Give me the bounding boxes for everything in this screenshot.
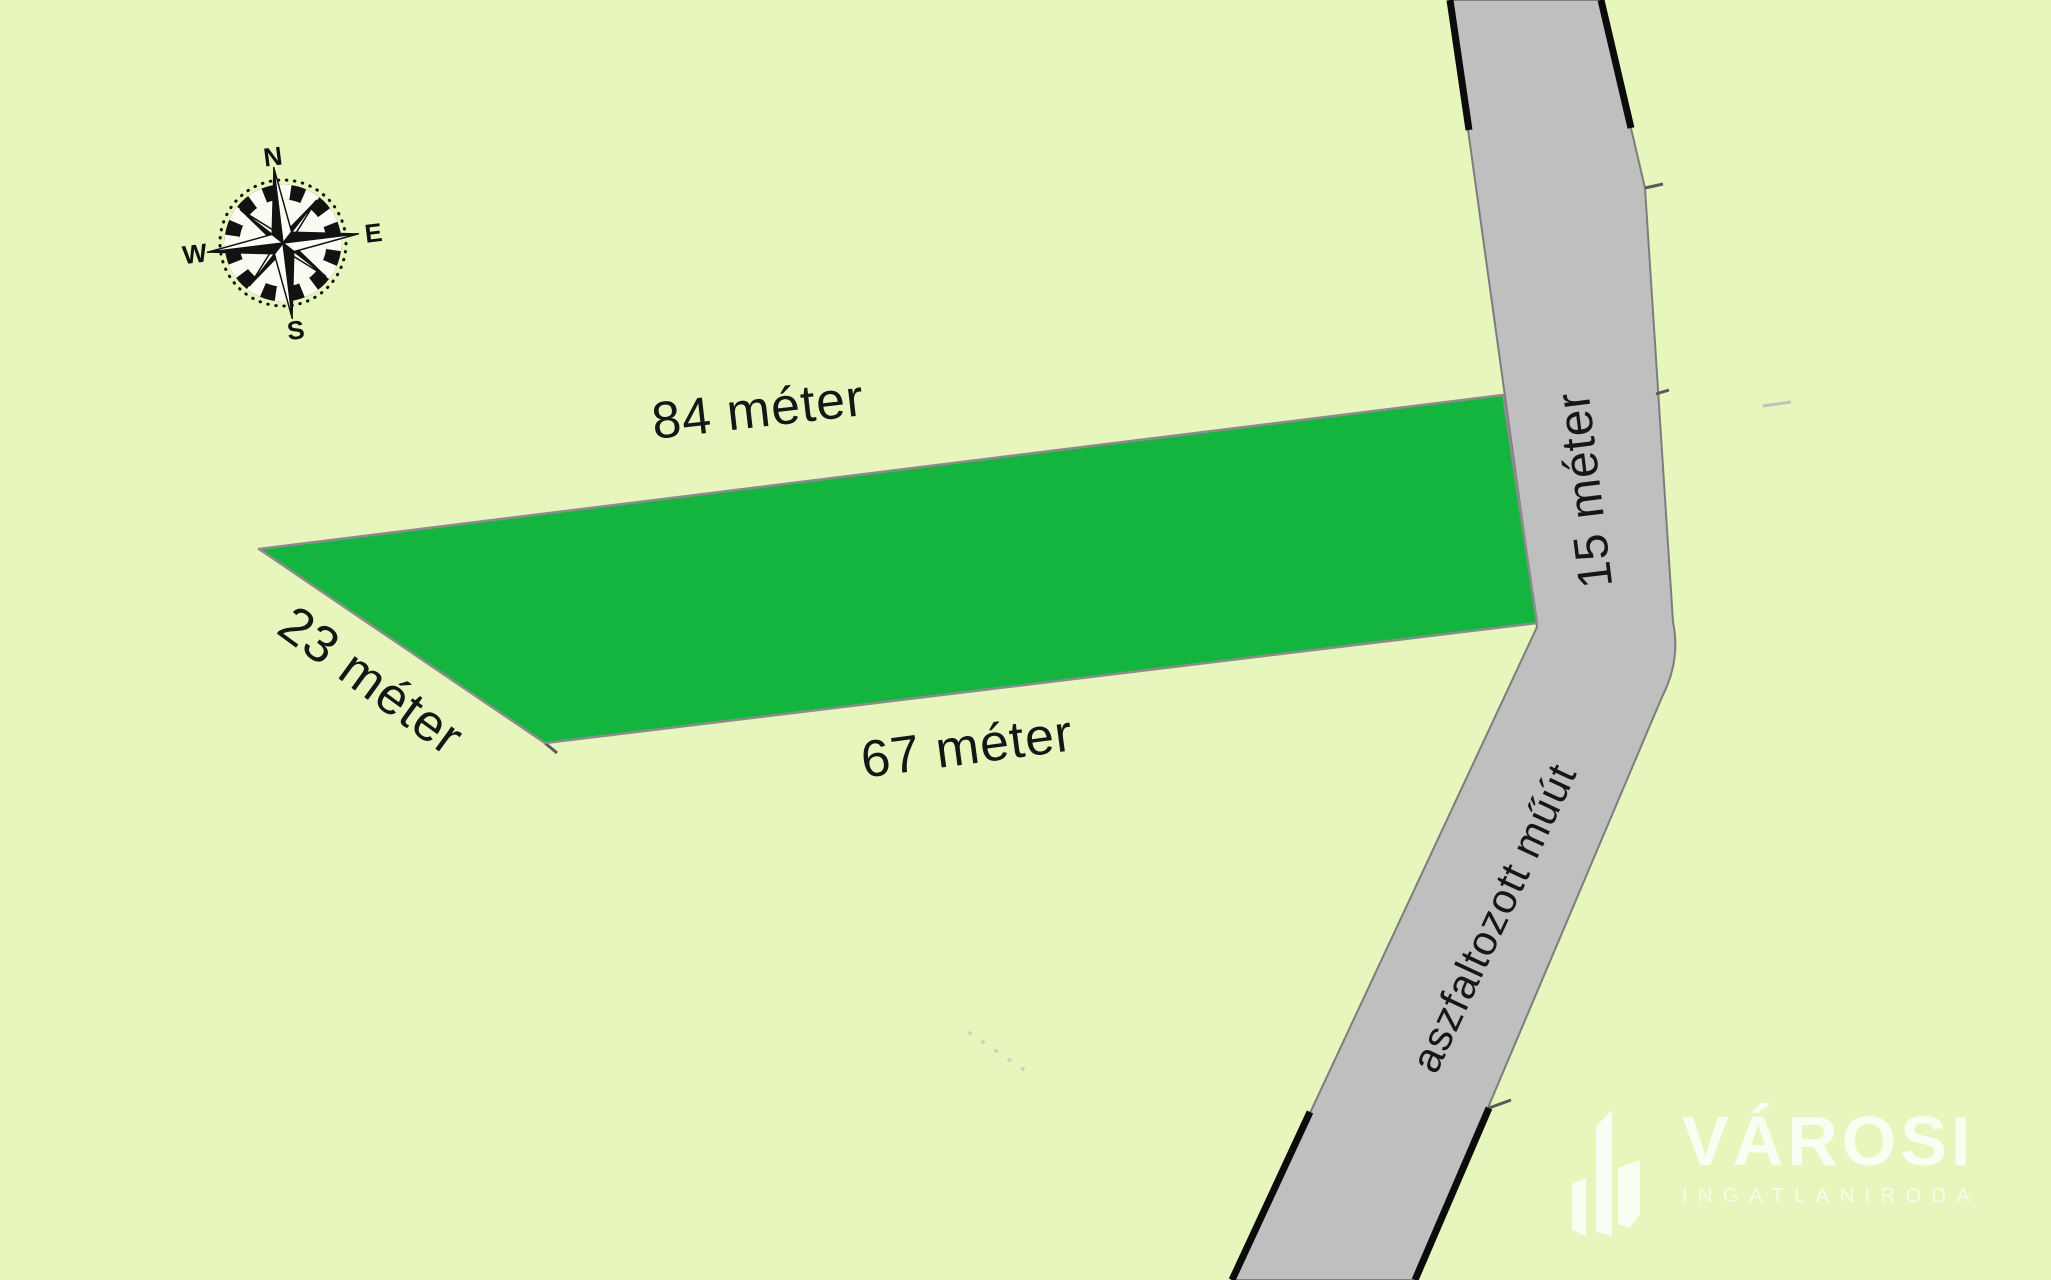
brand-text-block: VÁROSI INGATLANIRODA xyxy=(1682,1106,1980,1208)
brand-watermark: VÁROSI INGATLANIRODA xyxy=(1572,1106,1980,1238)
parcel-shape xyxy=(259,395,1537,743)
compass-west-label: W xyxy=(181,237,209,270)
compass-south-label: S xyxy=(285,314,306,346)
compass-star-cardinal xyxy=(198,158,367,327)
compass-north-label: N xyxy=(262,141,284,173)
faint-boundary-dots xyxy=(968,1032,1026,1071)
parcel-map: N E S W 84 méter 23 méter 67 méter 15 mé… xyxy=(0,0,2051,1280)
buildings-icon xyxy=(1572,1110,1660,1238)
brand-subtitle: INGATLANIRODA xyxy=(1682,1185,1980,1208)
brand-name: VÁROSI xyxy=(1682,1106,1980,1176)
boundary-tick xyxy=(1645,184,1663,188)
faint-boundary-dash xyxy=(1763,402,1791,406)
boundary-tick xyxy=(545,743,557,753)
compass-rose: N E S W xyxy=(170,130,394,358)
boundary-tick xyxy=(1489,1100,1511,1108)
compass-east-label: E xyxy=(363,217,384,249)
